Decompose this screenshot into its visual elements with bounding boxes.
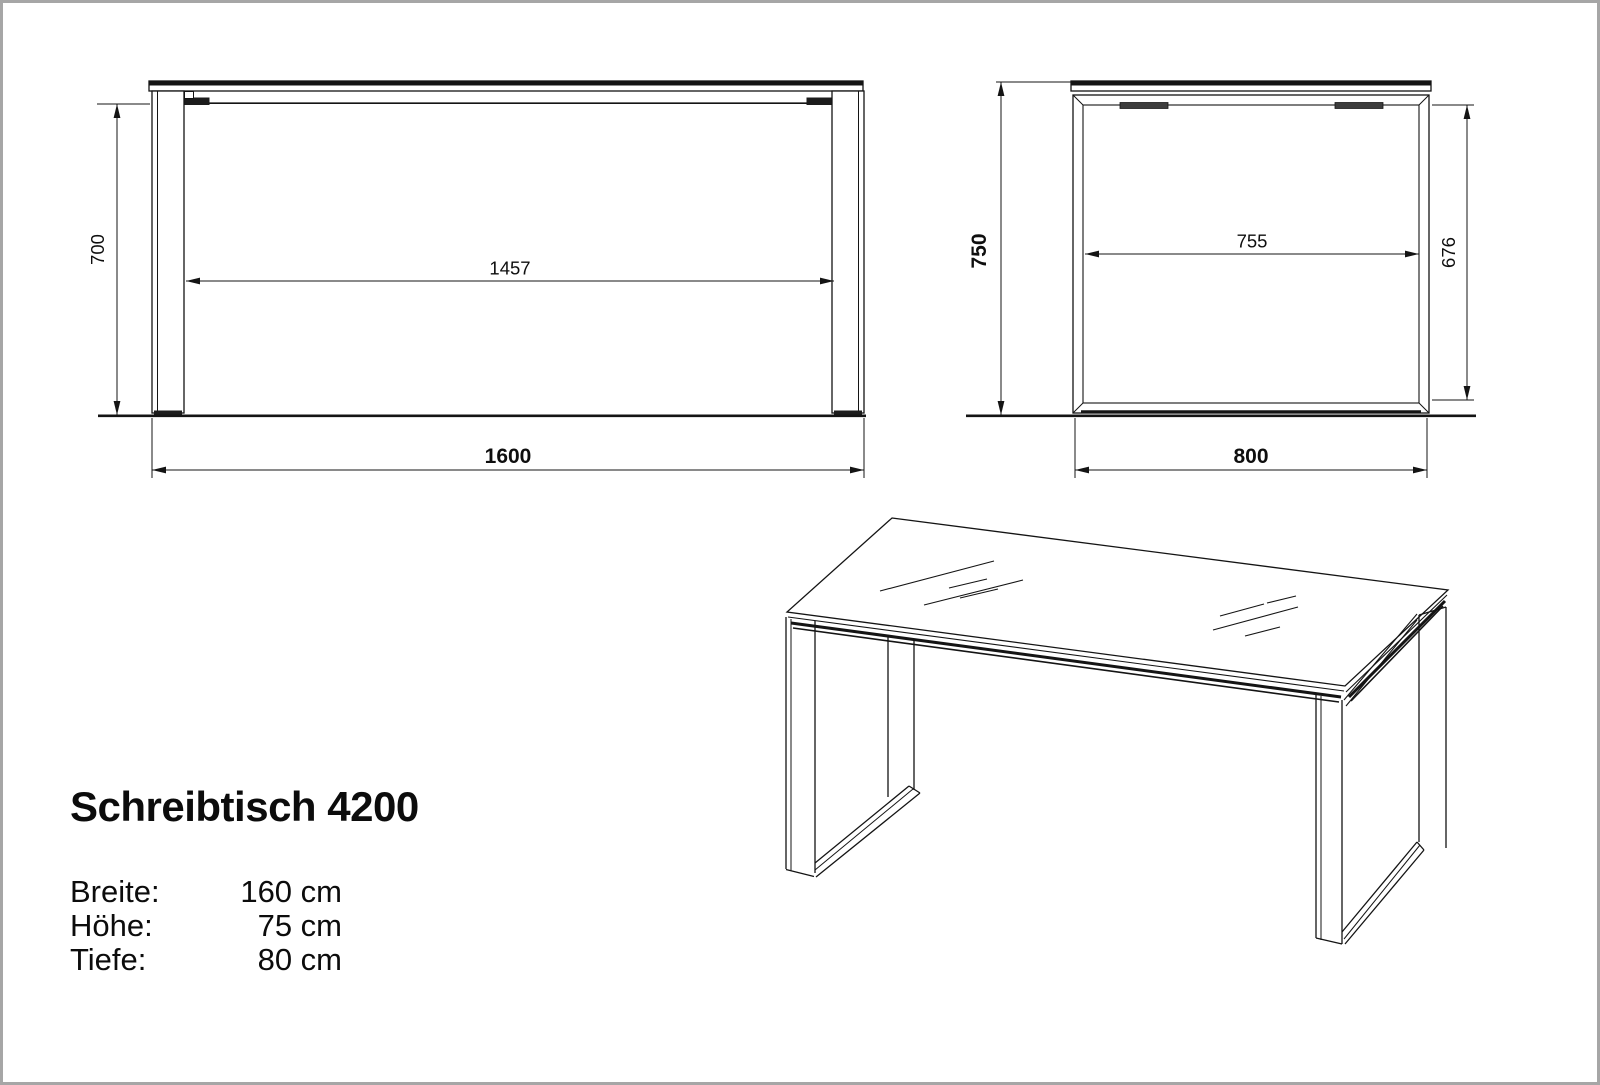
spec-row-tiefe: Tiefe: 80 cm (70, 943, 342, 977)
product-title: Schreibtisch 4200 (70, 783, 419, 831)
spec-label-breite: Breite: (70, 875, 222, 909)
iso-right-leg-front-bar (1316, 694, 1342, 944)
spec-value-breite: 160 cm (222, 875, 342, 909)
title-block: Schreibtisch 4200 (70, 783, 419, 831)
spec-value-hoehe: 75 cm (222, 909, 342, 943)
front-right-leg (832, 91, 864, 413)
iso-left-leg-back-bar (888, 636, 914, 797)
front-dim-1457-label: 1457 (489, 258, 530, 279)
iso-left-leg-bottom-rail-inner (815, 789, 913, 870)
front-leg-feet (154, 411, 862, 415)
iso-left-leg-bottom-rail (815, 786, 920, 877)
front-view: 700 1457 1600 (87, 81, 866, 478)
side-dim-676-label: 676 (1438, 237, 1459, 268)
iso-left-leg-front-bar (786, 617, 815, 877)
front-dim-1457: 1457 (186, 258, 834, 282)
spec-row-hoehe: Höhe: 75 cm (70, 909, 342, 943)
front-leg-inner-lines (158, 91, 859, 413)
iso-right-leg-back-bar (1419, 607, 1446, 848)
iso-right-leg-bottom-rail-inner (1344, 845, 1420, 939)
iso-left-leg (786, 617, 920, 877)
side-dim-800: 800 (1075, 418, 1427, 478)
iso-right-leg-bottom-rail (1342, 842, 1424, 944)
side-dim-676: 676 (1432, 105, 1474, 400)
iso-view (786, 518, 1448, 944)
front-dim-700-label: 700 (87, 234, 108, 265)
front-left-leg (152, 91, 184, 413)
side-dim-750: 750 (968, 82, 1071, 415)
side-dim-755-label: 755 (1237, 231, 1268, 252)
front-dim-1600: 1600 (152, 418, 864, 478)
side-dim-750-label: 750 (968, 233, 991, 268)
side-view: 750 755 676 800 (966, 81, 1476, 478)
spec-value-tiefe: 80 cm (222, 943, 342, 977)
technical-drawing-page: 700 1457 1600 (0, 0, 1600, 1085)
side-dim-800-label: 800 (1233, 445, 1268, 468)
front-leg-connector-boxes (185, 92, 864, 99)
spec-label-tiefe: Tiefe: (70, 943, 222, 977)
spec-label-hoehe: Höhe: (70, 909, 222, 943)
spec-table: Breite: 160 cm Höhe: 75 cm Tiefe: 80 cm (70, 875, 342, 977)
front-dim-700: 700 (87, 104, 150, 415)
front-dim-1600-label: 1600 (485, 445, 532, 468)
spec-row-breite: Breite: 160 cm (70, 875, 342, 909)
